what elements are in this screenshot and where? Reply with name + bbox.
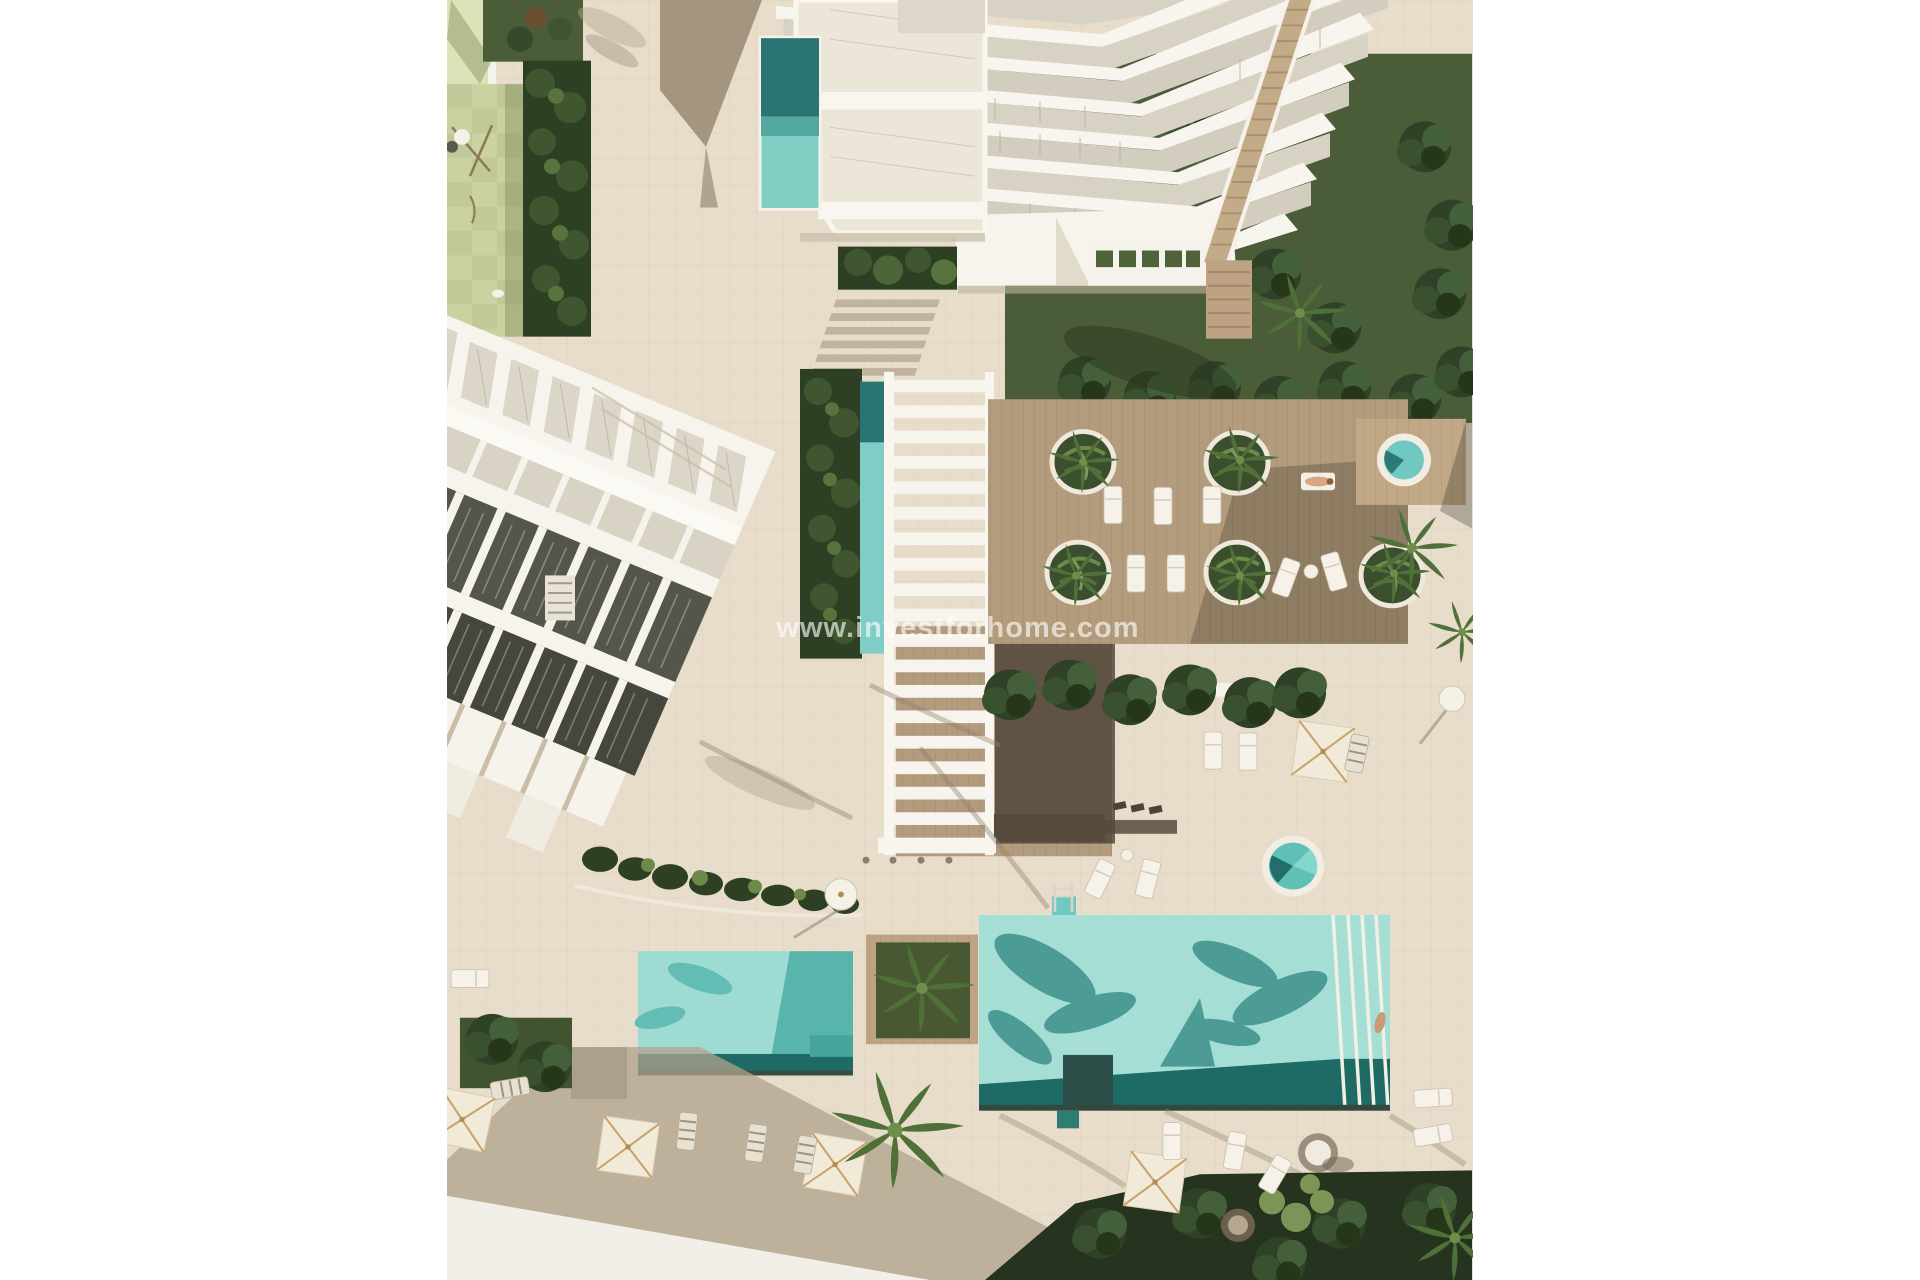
sun-lounger: [1204, 732, 1222, 769]
sun-lounger: [1167, 555, 1185, 592]
pool-platform: [1063, 1055, 1113, 1109]
rooftop-lap-pool: [760, 37, 820, 209]
gray-mat: [571, 1047, 627, 1099]
sun-lounger: [1413, 1088, 1452, 1108]
parasol: [1291, 721, 1354, 783]
tower-base-bushes: [838, 247, 957, 290]
render-photo: www.investforhome.com: [447, 0, 1473, 1280]
main-pool: [979, 884, 1390, 1129]
sun-lounger: [1154, 487, 1172, 524]
sun-lounger: [1203, 486, 1221, 523]
tree-trunk: [525, 7, 547, 29]
deck-ledge: [993, 814, 1105, 841]
small-dog: [492, 290, 504, 298]
sun-lounger: [1239, 733, 1257, 770]
side-table: [1304, 565, 1318, 579]
sun-lounger: [451, 970, 489, 988]
pool-ladder: [1052, 884, 1076, 915]
sunbather: [1301, 473, 1335, 491]
jacuzzi-lower: [1262, 836, 1324, 897]
sun-lounger: [1163, 1122, 1181, 1159]
garden-bench: [545, 575, 575, 620]
aerial-render-scene: www.investforhome.com: [447, 0, 1473, 1280]
sun-lounger: [1104, 486, 1122, 523]
tower-entrance: [956, 207, 1237, 293]
pool-grass-island: [866, 935, 978, 1045]
sun-lounger: [1127, 555, 1145, 592]
sun-lounger: [676, 1112, 698, 1151]
parasol: [1123, 1151, 1186, 1213]
hedge-shadow: [505, 84, 523, 336]
tower-low-wing: [796, 0, 985, 242]
parasol: [596, 1116, 659, 1178]
pool-bench: [1057, 1111, 1079, 1129]
wicker-chair: [1221, 1209, 1255, 1242]
watermark-text: www.investforhome.com: [775, 612, 1139, 644]
screenshot-canvas: www.investforhome.com: [0, 0, 1920, 1280]
